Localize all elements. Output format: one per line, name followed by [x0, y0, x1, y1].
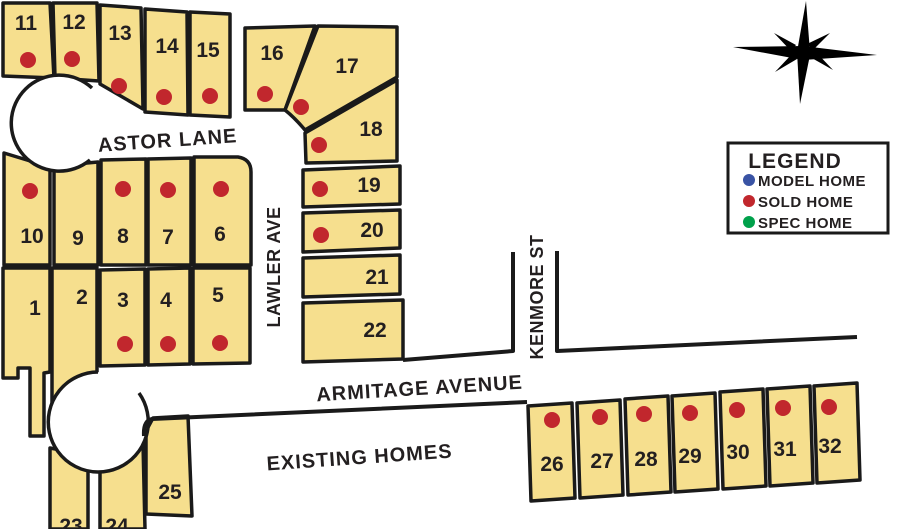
existing-homes-label: EXISTING HOMES	[266, 441, 453, 476]
compass-rose-icon	[733, 1, 877, 104]
lot-23-number: 23	[59, 515, 82, 529]
lot-8	[101, 159, 146, 265]
lot-11-number: 11	[15, 12, 38, 35]
lot-7-number: 7	[162, 226, 174, 249]
astor-lane-label: ASTOR LANE	[97, 125, 238, 157]
sold-dot-lot-31	[775, 400, 791, 416]
model-home-label: MODEL HOME	[758, 173, 866, 190]
lot-26-number: 26	[540, 453, 563, 476]
lot-16-number: 16	[260, 42, 283, 65]
sold-dot-lot-16	[257, 86, 273, 102]
sold-dot-lot-12	[64, 51, 80, 67]
lot-8-number: 8	[117, 225, 129, 248]
lot-12-number: 12	[62, 11, 85, 34]
lot-3-number: 3	[117, 289, 129, 312]
lot-32-number: 32	[818, 435, 841, 458]
lot-28-number: 28	[634, 448, 658, 471]
sold-home-dot	[743, 195, 755, 207]
lot-20-number: 20	[360, 219, 383, 242]
lot-2-number: 2	[76, 286, 88, 309]
legend: LEGEND MODEL HOME SOLD HOME SPEC HOME	[728, 143, 888, 233]
sold-dot-lot-8	[115, 181, 131, 197]
armitage-south-edge	[144, 402, 527, 436]
model-home-dot	[743, 174, 755, 186]
lot-31	[767, 386, 813, 486]
legend-title: LEGEND	[748, 150, 842, 173]
lot-6	[194, 157, 251, 265]
lot-18-number: 18	[359, 118, 383, 141]
sold-dot-lot-6	[213, 181, 229, 197]
spec-home-dot	[743, 216, 755, 228]
kenmore-st-label: KENMORE ST	[527, 234, 547, 359]
lot-17-number: 17	[335, 55, 358, 78]
lot-27-number: 27	[590, 450, 613, 473]
lot-24-number: 24	[105, 515, 129, 529]
sold-dot-lot-13	[111, 78, 127, 94]
sold-dot-lot-28	[636, 406, 652, 422]
kenmore-west-edge	[403, 252, 513, 360]
sold-dot-lot-30	[729, 402, 745, 418]
compass-ne-dart	[807, 33, 830, 50]
sold-dot-lot-20	[313, 227, 329, 243]
sold-dot-lot-32	[821, 399, 837, 415]
site-plan-map: 11 12 13 14 15 16 17 18 19 20 21 22 10 9…	[0, 0, 900, 529]
lot-22	[303, 300, 403, 362]
armitage-avenue-label: ARMITAGE AVENUE	[316, 372, 524, 407]
kenmore-east-edge-and-armitage-north	[557, 251, 857, 351]
lot-5-number: 5	[212, 284, 224, 307]
lot-1-number: 1	[29, 297, 41, 320]
lot-6-number: 6	[214, 223, 226, 246]
plat-map-svg: 11 12 13 14 15 16 17 18 19 20 21 22 10 9…	[0, 0, 900, 529]
lot-21-number: 21	[365, 266, 389, 289]
sold-dot-lot-17	[293, 99, 309, 115]
lot-9-number: 9	[72, 227, 84, 250]
lot-13-number: 13	[108, 22, 131, 45]
lot-4-number: 4	[160, 289, 172, 312]
sold-dot-lot-5	[212, 335, 228, 351]
lot-31-number: 31	[773, 438, 797, 461]
lot-15-number: 15	[196, 39, 220, 62]
sold-dot-lot-27	[592, 409, 608, 425]
sold-dot-lot-29	[682, 405, 698, 421]
lot-30-number: 30	[726, 441, 749, 464]
sold-dot-lot-14	[156, 89, 172, 105]
lot-32	[814, 383, 860, 483]
sold-dot-lot-4	[160, 336, 176, 352]
sold-dot-lot-7	[160, 182, 176, 198]
sold-dot-lot-26	[544, 412, 560, 428]
sold-dot-lot-15	[202, 88, 218, 104]
armitage-cul-de-sac	[48, 372, 148, 472]
spec-home-label: SPEC HOME	[758, 215, 853, 232]
lot-22-number: 22	[363, 319, 386, 342]
sold-dot-lot-18	[311, 137, 327, 153]
lot-30	[720, 389, 766, 489]
lot-29-number: 29	[678, 445, 701, 468]
sold-dot-lot-11	[20, 52, 36, 68]
astor-lane-cul-de-sac	[11, 75, 92, 171]
sold-dot-lot-19	[312, 181, 328, 197]
lot-1	[3, 268, 50, 436]
lot-14-number: 14	[155, 35, 179, 58]
lot-25-number: 25	[158, 481, 182, 504]
lot-19-number: 19	[357, 174, 380, 197]
lot-10-number: 10	[20, 225, 43, 248]
sold-home-label: SOLD HOME	[758, 194, 853, 211]
sold-dot-lot-10	[22, 183, 38, 199]
lawler-ave-label: LAWLER AVE	[264, 207, 284, 328]
sold-dot-lot-3	[117, 336, 133, 352]
